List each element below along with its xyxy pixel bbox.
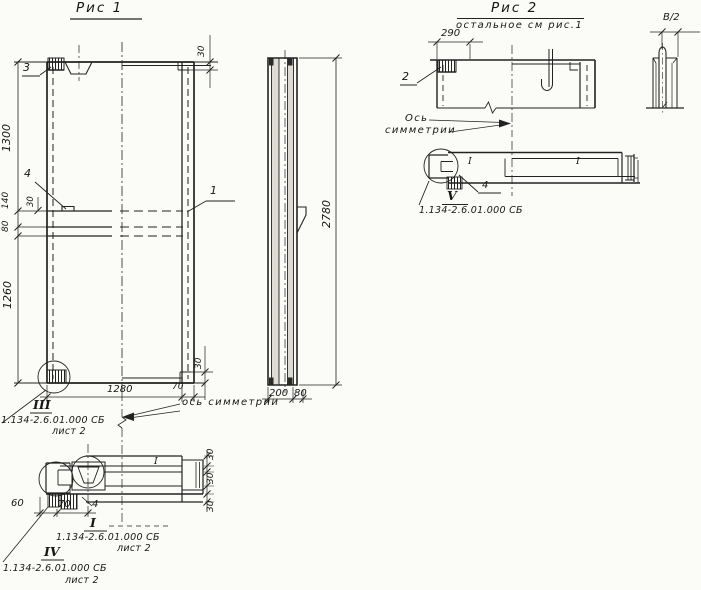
- drawing-sheet: Рис 1 3 4 1 1300 140 80 1260 30 30 30 12…: [0, 0, 701, 590]
- dim-30-bottom-right: 30: [195, 358, 204, 369]
- dim-80: 80: [2, 221, 11, 232]
- dim-30-section-b: 30: [207, 473, 216, 484]
- detail-iv-numeral: IV: [44, 546, 60, 559]
- dim-70-section: 70: [58, 500, 71, 510]
- position-mark-fig2-b: I: [576, 157, 580, 167]
- dim-70-bottom: 70: [172, 383, 183, 392]
- dim-1300: 1300: [1, 124, 12, 152]
- axis-of-symmetry-note: ось симметрии: [182, 398, 279, 408]
- fig2-subtitle: остальное см рис.1: [456, 21, 583, 31]
- detail-i-sheet: лист 2: [117, 544, 151, 554]
- dim-30-top-right: 30: [198, 46, 207, 57]
- position-mark-fig2-a: I: [468, 157, 472, 167]
- dim-30-section-a: 30: [207, 449, 216, 460]
- dim-140: 140: [2, 192, 11, 209]
- detail-iv-doc: 1.134-2.6.01.000 СБ: [3, 564, 107, 574]
- detail-iii-sheet: лист 2: [52, 427, 86, 437]
- position-mark-section-a: I: [154, 457, 158, 467]
- part-label-1: 1: [210, 185, 217, 196]
- part-label-4: 4: [24, 168, 31, 179]
- dim-80-side: 80: [294, 389, 307, 399]
- dim-1260: 1260: [2, 281, 13, 309]
- dim-2780: 2780: [321, 200, 332, 228]
- axis-note-line2: симметрии: [385, 126, 456, 136]
- dim-1280: 1280: [107, 385, 132, 395]
- fig2-title: Рис 2: [491, 2, 538, 16]
- axis-note-line1: Ось: [405, 114, 428, 124]
- fig2-plan-view: [400, 19, 595, 138]
- fig1-title: Рис 1: [76, 2, 123, 16]
- dim-290: 290: [441, 29, 460, 39]
- dim-30-notch: 30: [27, 196, 36, 207]
- b2-end-detail: [646, 29, 700, 114]
- detail-v-doc: 1.134-2.6.01.000 СБ: [419, 206, 523, 216]
- detail-i-doc: 1.134-2.6.01.000 СБ: [56, 533, 160, 543]
- drawing-linework: [0, 0, 701, 590]
- dim-30-section-c: 30: [207, 501, 216, 512]
- part-label-4-section: 4: [92, 500, 98, 510]
- part-label-4-fig2: 4: [482, 181, 488, 191]
- detail-iv-sheet: лист 2: [65, 576, 99, 586]
- detail-v-numeral: V: [447, 190, 457, 203]
- part-label-3: 3: [23, 62, 30, 73]
- detail-i-numeral: I: [90, 517, 96, 530]
- dim-b2: В/2: [663, 13, 680, 23]
- detail-iii-numeral: III: [33, 399, 51, 412]
- dim-200: 200: [269, 389, 288, 399]
- dim-60: 60: [11, 499, 24, 509]
- part-label-2: 2: [402, 71, 409, 82]
- detail-iii-doc: 1.134-2.6.01.000 СБ: [1, 416, 105, 426]
